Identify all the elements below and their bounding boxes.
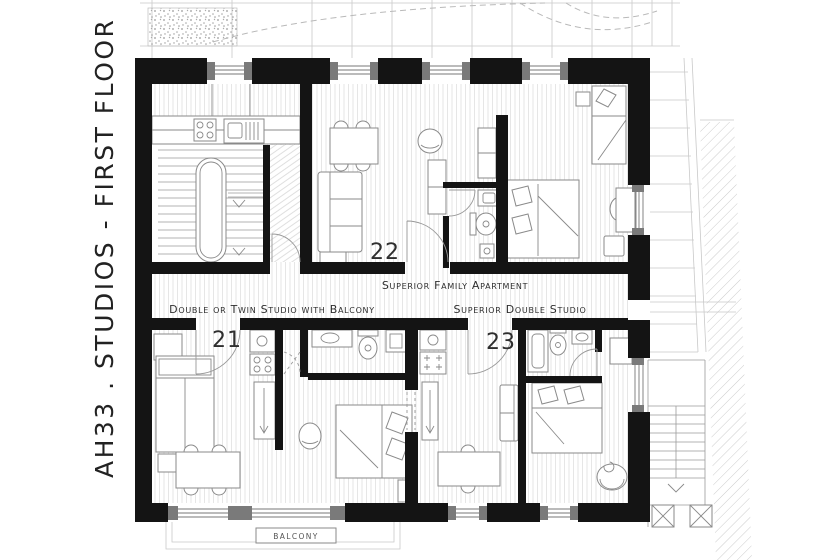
- toilet-icon: [358, 330, 378, 359]
- toilet-icon: [550, 328, 566, 355]
- boiler-icon: [480, 244, 494, 258]
- stool: [604, 236, 624, 256]
- unit-21-number: 21: [212, 328, 242, 353]
- balcony: BALCONY: [166, 522, 400, 549]
- dining-table: [330, 121, 378, 171]
- table: [438, 445, 500, 493]
- stove-icon: [250, 354, 275, 375]
- dining-table: [176, 445, 240, 495]
- sink-icon: [420, 330, 446, 350]
- toilet-icon: [470, 213, 496, 235]
- balcony-label: BALCONY: [273, 532, 319, 541]
- armchair: [299, 423, 321, 449]
- sink-icon: [250, 330, 275, 352]
- plan-title: AH33 . STUDIOS - FIRST FLOOR: [90, 18, 119, 478]
- double-bed: [336, 405, 412, 478]
- washbasin-icon: [312, 330, 352, 347]
- stair-post: [652, 505, 674, 527]
- sofa: [500, 385, 518, 441]
- sofa: [318, 172, 362, 266]
- kitchen-unit: [478, 128, 496, 178]
- shower-icon: [528, 330, 548, 372]
- armchair: [418, 129, 442, 153]
- stove-icon: [420, 352, 446, 374]
- double-bed: [507, 180, 579, 258]
- double-bed: [532, 383, 602, 453]
- wardrobe: [254, 382, 275, 439]
- driveway-arcs: [213, 3, 657, 42]
- floor-plan: BALCONY AH33 . STUDIOS - FIRST FLOOR 22 …: [0, 0, 820, 560]
- stair-post: [690, 505, 712, 527]
- unit-23-number: 23: [486, 330, 516, 355]
- washbasin-icon: [572, 330, 592, 344]
- kitchenette: [250, 330, 275, 439]
- site-hatch-strip: [700, 120, 752, 560]
- stove-icon: [194, 119, 216, 141]
- unit-21-name: Double or Twin Studio with Balcony: [169, 303, 375, 316]
- shower-icon: [386, 330, 406, 352]
- gravel-area: [148, 8, 237, 46]
- unit-22-name: Superior Family Apartment: [382, 279, 528, 292]
- exterior-stair: [648, 360, 712, 527]
- floor-plan-page: BALCONY AH33 . STUDIOS - FIRST FLOOR 22 …: [0, 0, 820, 560]
- unit-22-number: 22: [370, 240, 400, 265]
- unit-23-name: Superior Double Studio: [453, 303, 586, 316]
